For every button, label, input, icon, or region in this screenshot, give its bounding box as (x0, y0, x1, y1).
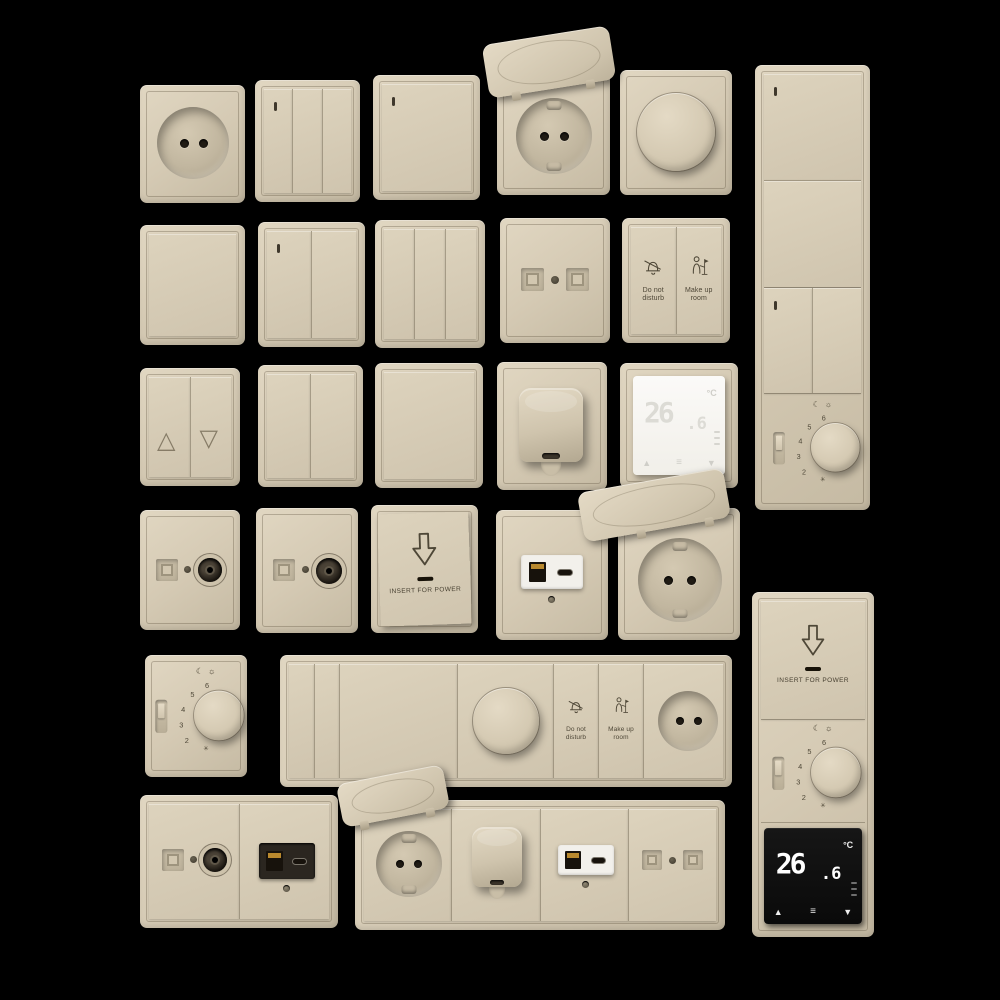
rocker-button[interactable] (292, 89, 321, 193)
key-card-holder: INSERT FOR POWER (371, 505, 478, 633)
data-port[interactable] (273, 559, 295, 581)
data-socket-double (500, 218, 610, 343)
horizontal-combo-panel (355, 800, 725, 930)
socket-section (643, 664, 723, 778)
temp-up-button[interactable]: ▲ (642, 458, 651, 468)
usb-c-port[interactable] (293, 859, 306, 864)
card-slot[interactable] (805, 667, 821, 671)
switch-1gang-blank (140, 225, 245, 345)
rocker-button[interactable] (812, 288, 861, 393)
rocker-button[interactable] (764, 288, 812, 393)
rocker-button[interactable] (414, 229, 445, 339)
frost-symbol: ✳ (203, 745, 208, 752)
screw (582, 881, 589, 888)
thermostat-digital-white: 26 .6 °C ▲ ≡ ▼ (620, 363, 738, 488)
earth-clip (547, 162, 562, 171)
thermostat-display[interactable]: 26 .6 °C ▲ ≡ ▼ (633, 376, 725, 475)
lid-hinge (636, 529, 646, 539)
housekeeper-icon (611, 696, 631, 715)
rocker-button[interactable] (322, 89, 351, 193)
switch-1gang-indicator (373, 75, 480, 200)
usb-a-port[interactable] (529, 562, 546, 582)
coax-connector[interactable] (203, 848, 227, 872)
temperature-value: 26 (644, 396, 672, 429)
tv-socket-b (256, 508, 358, 633)
indicator-mark (392, 97, 395, 106)
rocker-button[interactable] (382, 84, 471, 191)
temp-up-button[interactable]: ▲ (774, 907, 783, 917)
rocker-button[interactable] (267, 231, 311, 338)
tv-usb-combo-plate (140, 795, 338, 928)
dial-number: 2 (802, 468, 806, 476)
thermostat-dial-section: ☾☼ 6 5 4 3 2 ✳ (761, 719, 865, 822)
night-day-icons: ☾☼ (813, 724, 837, 734)
earth-clip (402, 885, 417, 894)
indicator-mark (274, 102, 277, 111)
usb-c-port[interactable] (558, 570, 572, 575)
socket-recess[interactable] (157, 107, 229, 179)
data-port-right[interactable] (566, 268, 589, 291)
cable-guide (541, 462, 561, 476)
up-triangle-icon: △ (157, 429, 175, 453)
usb-charger-module (239, 804, 330, 919)
indicator-mark (774, 87, 777, 96)
cable-opening (490, 880, 504, 885)
dial-number: 5 (190, 691, 194, 699)
product-grid: ☾☼ 6 5 4 3 2 ✳ (0, 0, 1000, 1000)
socket-recess[interactable] (658, 691, 718, 751)
coax-connector[interactable] (198, 558, 222, 582)
lid-hinge (585, 79, 595, 89)
tv-socket (140, 510, 240, 630)
indicator-mark (774, 301, 777, 310)
dial-number: 3 (797, 453, 801, 461)
rocker-button-large[interactable] (764, 74, 861, 180)
rocker-button[interactable] (267, 374, 310, 478)
thermostat-display[interactable]: 26 .6 °C ▲ ≡ ▼ (764, 828, 862, 924)
night-day-icons: ☾☼ (813, 400, 837, 410)
rocker-button-narrow[interactable] (289, 664, 314, 778)
thermostat-analog: ☾☼ 6 5 4 3 2 ✳ (145, 655, 247, 777)
screw (548, 596, 555, 603)
thermostat-dial: ☾☼ 6 5 4 3 2 ✳ (765, 720, 861, 816)
socket-recess[interactable] (376, 831, 442, 897)
pin-hole-left (664, 576, 673, 585)
insert-arrow-icon (797, 623, 829, 659)
pin-hole-right (694, 717, 702, 725)
side-ticks (714, 431, 720, 445)
insert-for-power-label: INSERT FOR POWER (380, 585, 471, 595)
bell-crossed-icon (566, 698, 586, 715)
cable-opening (542, 453, 560, 459)
temperature-knob[interactable] (811, 748, 861, 798)
hotel-service-switch: Do notdisturb Make uproom (622, 218, 730, 343)
horizontal-multi-panel: Do notdisturb Make uproom (280, 655, 732, 787)
tv-socket-module (149, 804, 239, 919)
usb-c-port[interactable] (592, 858, 605, 863)
usb-insert (521, 555, 583, 589)
dial-number: 5 (807, 748, 811, 756)
data-port-left[interactable] (521, 268, 544, 291)
usb-insert (558, 845, 614, 875)
temperature-unit: °C (707, 388, 717, 398)
housekeeper-icon (687, 255, 711, 277)
dimmer-knob[interactable] (637, 93, 715, 171)
screw (283, 885, 290, 892)
mode-slider[interactable] (155, 700, 167, 733)
pin-hole-left (180, 139, 189, 148)
frost-symbol: ✳ (820, 802, 825, 809)
thermostat-dial: ☾☼ 6 5 4 3 2 ✳ (766, 396, 860, 490)
mode-slider[interactable] (772, 757, 784, 790)
vertical-multi-panel: ☾☼ 6 5 4 3 2 ✳ (755, 65, 870, 510)
dial-number: 6 (822, 414, 826, 422)
rocker-button[interactable] (445, 229, 476, 339)
status-dot (184, 566, 191, 573)
temperature-fraction: .6 (821, 864, 841, 884)
dial-number: 4 (181, 705, 185, 713)
socket-round-unearthed (140, 85, 245, 203)
dial-number: 2 (185, 737, 189, 745)
blinds-up-button[interactable]: △ (149, 377, 190, 477)
rocker-button-narrow[interactable] (314, 664, 339, 778)
dial-number: 3 (796, 778, 800, 786)
do-not-disturb-button[interactable]: Do notdisturb (553, 664, 598, 778)
data-port-right[interactable] (683, 850, 703, 870)
rocker-button-wide[interactable] (339, 664, 457, 778)
temperature-knob[interactable] (811, 423, 860, 472)
temperature-knob[interactable] (194, 691, 244, 741)
lid-hinge (704, 517, 714, 527)
side-ticks (851, 882, 857, 896)
pin-hole-right (560, 132, 569, 141)
socket-module (364, 809, 451, 921)
make-up-room-button[interactable]: Make uproom (676, 227, 722, 334)
earth-clip (547, 101, 562, 110)
insert-arrow-icon (406, 530, 441, 569)
insert-for-power-label: INSERT FOR POWER (761, 677, 865, 684)
dial-number: 4 (798, 437, 802, 445)
switch-2gang-indicator (258, 222, 365, 347)
status-dot (302, 566, 309, 573)
indicator-mark (277, 244, 280, 253)
menu-button[interactable]: ≡ (810, 906, 816, 917)
switch-3gang (255, 80, 360, 202)
socket-lid-open[interactable] (482, 25, 617, 98)
socket-with-lid-b (618, 508, 740, 640)
status-dot (551, 276, 559, 284)
switch-2gang-b (258, 365, 363, 487)
pin-hole-left (676, 717, 684, 725)
vertical-combo-panel: INSERT FOR POWER ☾☼ 6 5 4 3 2 ✳ (752, 592, 874, 937)
lid-hinge (425, 807, 436, 818)
pin-hole-left (540, 132, 549, 141)
dial-number: 6 (205, 681, 209, 689)
rocker-button[interactable] (384, 372, 474, 479)
menu-button[interactable]: ≡ (676, 457, 682, 468)
do-not-disturb-button[interactable]: Do notdisturb (631, 227, 676, 334)
usb-a-port[interactable] (266, 851, 283, 871)
rocker-button[interactable] (149, 234, 236, 336)
blinds-down-button[interactable]: ▽ (190, 377, 232, 477)
earth-clip (673, 542, 688, 551)
rocker-button[interactable] (264, 89, 292, 193)
cable-guide (489, 887, 505, 899)
data-port[interactable] (156, 559, 178, 581)
cable-outlet-hood[interactable] (472, 827, 522, 887)
socket-recess[interactable] (638, 538, 722, 622)
blinds-switch: △ ▽ (140, 368, 240, 486)
data-port[interactable] (162, 849, 184, 871)
coax-connector[interactable] (316, 558, 342, 584)
cable-outlet (497, 362, 607, 490)
data-port-left[interactable] (642, 850, 662, 870)
status-dot (190, 856, 197, 863)
mode-slider[interactable] (773, 432, 785, 464)
switch-3gang-b (375, 220, 485, 348)
pin-hole-left (396, 860, 404, 868)
pin-hole-right (414, 860, 422, 868)
usb-a-port[interactable] (565, 851, 581, 869)
dial-number: 5 (807, 423, 811, 431)
down-triangle-icon: ▽ (200, 427, 218, 451)
status-dot (669, 857, 676, 864)
night-day-icons: ☾☼ (196, 667, 220, 677)
earth-clip (673, 609, 688, 618)
rocker-button[interactable] (384, 229, 414, 339)
switch-1gang-large (375, 363, 483, 488)
rocker-button-large[interactable] (764, 180, 861, 287)
rocker-button[interactable] (311, 231, 356, 338)
dial-number: 6 (822, 738, 826, 746)
dimmer-section (457, 664, 553, 778)
temperature-unit: °C (843, 840, 853, 850)
key-card-slot-face[interactable]: INSERT FOR POWER (377, 511, 472, 626)
pin-hole-right (199, 139, 208, 148)
usb-charger-module (540, 809, 628, 921)
rocker-button[interactable] (310, 374, 354, 478)
lid-hinge (359, 820, 370, 831)
thermostat-dial: ☾☼ 6 5 4 3 2 ✳ (148, 663, 244, 759)
usb-insert-dark (259, 843, 315, 879)
temp-down-button[interactable]: ▼ (707, 458, 716, 468)
thermostat-dial-section: ☾☼ 6 5 4 3 2 ✳ (764, 393, 861, 501)
lid-hinge (511, 91, 521, 101)
temperature-value: 26 (776, 847, 804, 880)
socket-recess[interactable] (516, 98, 592, 174)
dial-number: 2 (802, 794, 806, 802)
cable-outlet-module (451, 809, 539, 921)
temperature-fraction: .6 (686, 414, 706, 434)
data-socket-module (628, 809, 716, 921)
double-vertical-switch (764, 287, 861, 393)
socket-with-lid (497, 73, 610, 195)
dimmer-knob[interactable] (473, 688, 539, 754)
temp-down-button[interactable]: ▼ (843, 907, 852, 917)
earth-clip (402, 834, 417, 843)
pin-hole-right (687, 576, 696, 585)
make-up-room-button[interactable]: Make uproom (598, 664, 643, 778)
cable-outlet-hood[interactable] (519, 388, 583, 462)
dial-number: 4 (798, 762, 802, 770)
card-slot[interactable] (417, 577, 433, 582)
thermostat-digital-section: 26 .6 °C ▲ ≡ ▼ (761, 822, 865, 928)
dial-number: 3 (179, 721, 183, 729)
dimmer (620, 70, 732, 195)
key-card-section[interactable]: INSERT FOR POWER (761, 601, 865, 719)
bell-crossed-icon (641, 257, 665, 277)
frost-symbol: ✳ (820, 476, 825, 483)
